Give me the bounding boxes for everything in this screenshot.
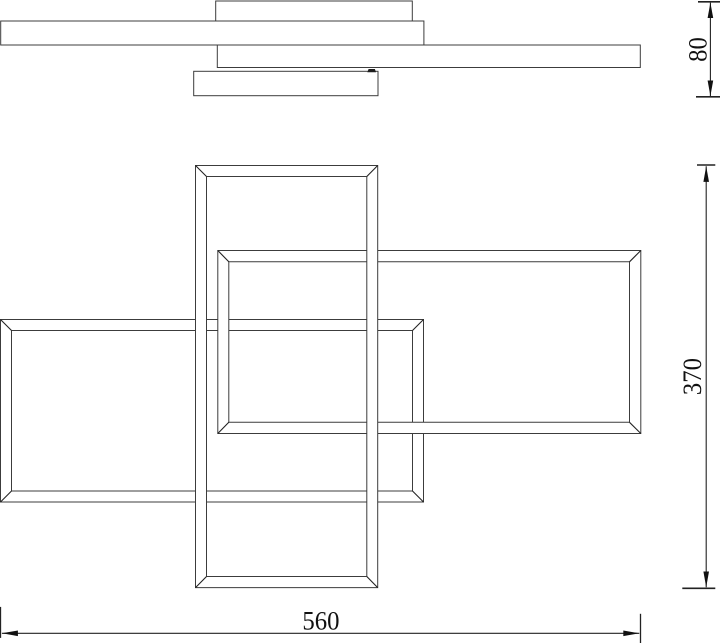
svg-text:370: 370 — [677, 358, 707, 395]
svg-text:560: 560 — [302, 605, 339, 635]
svg-text:80: 80 — [683, 37, 713, 62]
